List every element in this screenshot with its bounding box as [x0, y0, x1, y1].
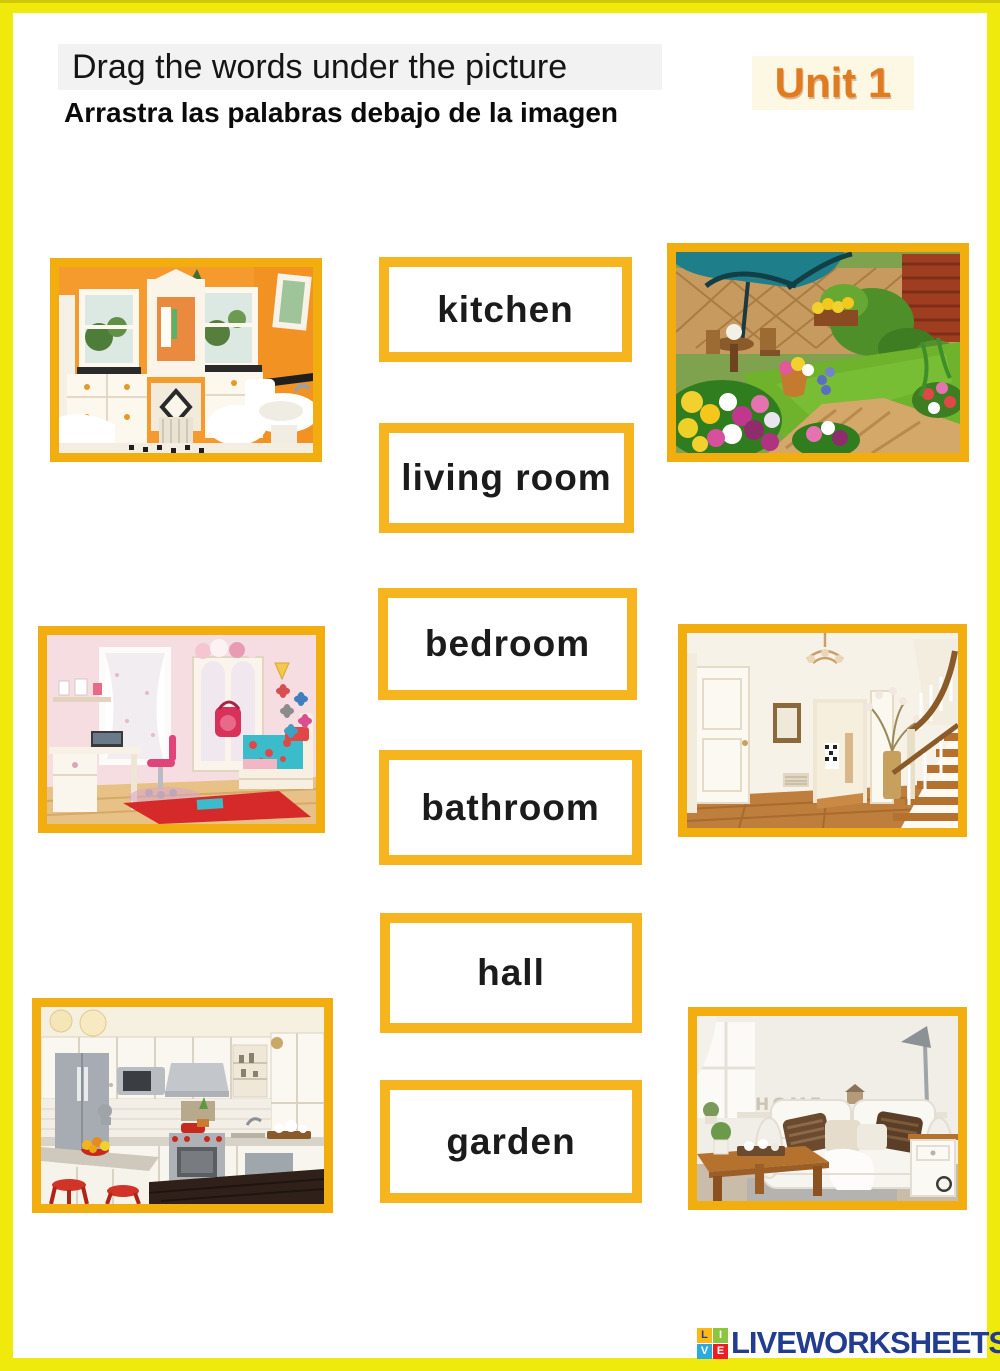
liveworksheets-logo[interactable]: L I V E LIVEWORKSHEETS: [697, 1325, 1000, 1361]
word-card-bedroom[interactable]: bedroom: [378, 588, 637, 700]
garden-illustration: [676, 252, 960, 453]
hall-illustration: [687, 633, 958, 828]
word-card-living-room[interactable]: living room: [379, 423, 634, 533]
page-subtitle: Arrastra las palabras debajo de la image…: [64, 97, 618, 129]
liveworksheets-logo-icon: L I V E: [697, 1328, 728, 1359]
unit-label: Unit 1: [752, 56, 914, 110]
logo-block-l: L: [697, 1328, 712, 1343]
photo-kitchen[interactable]: [32, 998, 333, 1213]
word-card-bathroom[interactable]: bathroom: [379, 750, 642, 865]
bedroom-illustration: [47, 635, 316, 824]
living-room-illustration: HOME: [697, 1016, 958, 1201]
page-title: Drag the words under the picture: [58, 44, 662, 90]
photo-living-room[interactable]: HOME: [688, 1007, 967, 1210]
photo-garden[interactable]: [667, 243, 969, 462]
word-card-kitchen[interactable]: kitchen: [379, 257, 632, 362]
word-card-garden[interactable]: garden: [380, 1080, 642, 1203]
word-card-hall[interactable]: hall: [380, 913, 642, 1033]
logo-block-e: E: [713, 1344, 728, 1359]
photo-bedroom[interactable]: [38, 626, 325, 833]
photo-bathroom[interactable]: [50, 258, 322, 462]
kitchen-illustration: [41, 1007, 324, 1204]
logo-block-v: V: [697, 1344, 712, 1359]
bathroom-illustration: [59, 267, 313, 453]
liveworksheets-logo-text: LIVEWORKSHEETS: [731, 1325, 1000, 1361]
photo-hall[interactable]: [678, 624, 967, 837]
logo-block-i: I: [713, 1328, 728, 1343]
